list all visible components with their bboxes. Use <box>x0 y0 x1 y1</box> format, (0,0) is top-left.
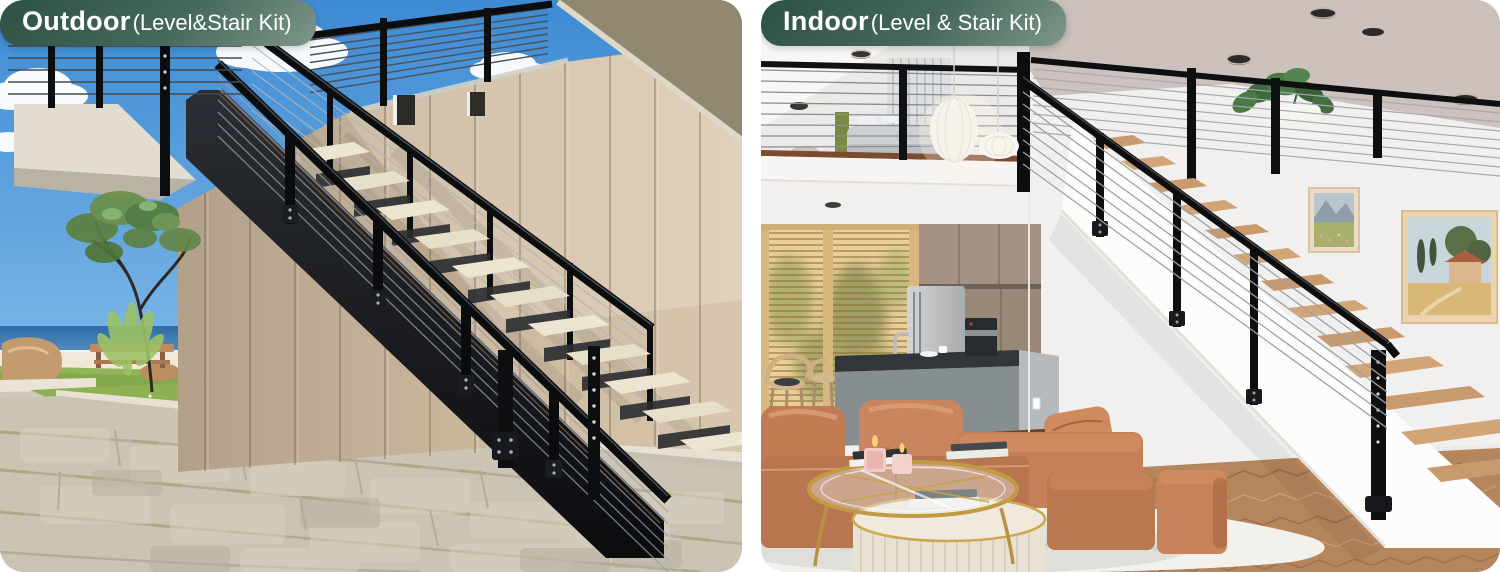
outdoor-badge-detail: (Level&Stair Kit) <box>133 12 292 34</box>
comparison-image: Outdoor(Level&Stair Kit) <box>0 0 1500 572</box>
outdoor-staircase-photo <box>0 0 742 572</box>
painting-small <box>1309 188 1359 252</box>
indoor-staircase-photo <box>761 0 1500 572</box>
indoor-badge-detail: (Level & Stair Kit) <box>871 12 1042 34</box>
indoor-panel: Indoor(Level & Stair Kit) <box>761 0 1500 572</box>
indoor-badge-title: Indoor <box>783 8 869 35</box>
wall-outlet <box>1033 398 1040 409</box>
green-wall <box>835 112 849 158</box>
outdoor-badge: Outdoor(Level&Stair Kit) <box>0 0 316 46</box>
outdoor-badge-title: Outdoor <box>22 8 131 35</box>
indoor-badge: Indoor(Level & Stair Kit) <box>761 0 1066 46</box>
painting-large <box>1402 211 1497 323</box>
outdoor-panel: Outdoor(Level&Stair Kit) <box>0 0 742 572</box>
